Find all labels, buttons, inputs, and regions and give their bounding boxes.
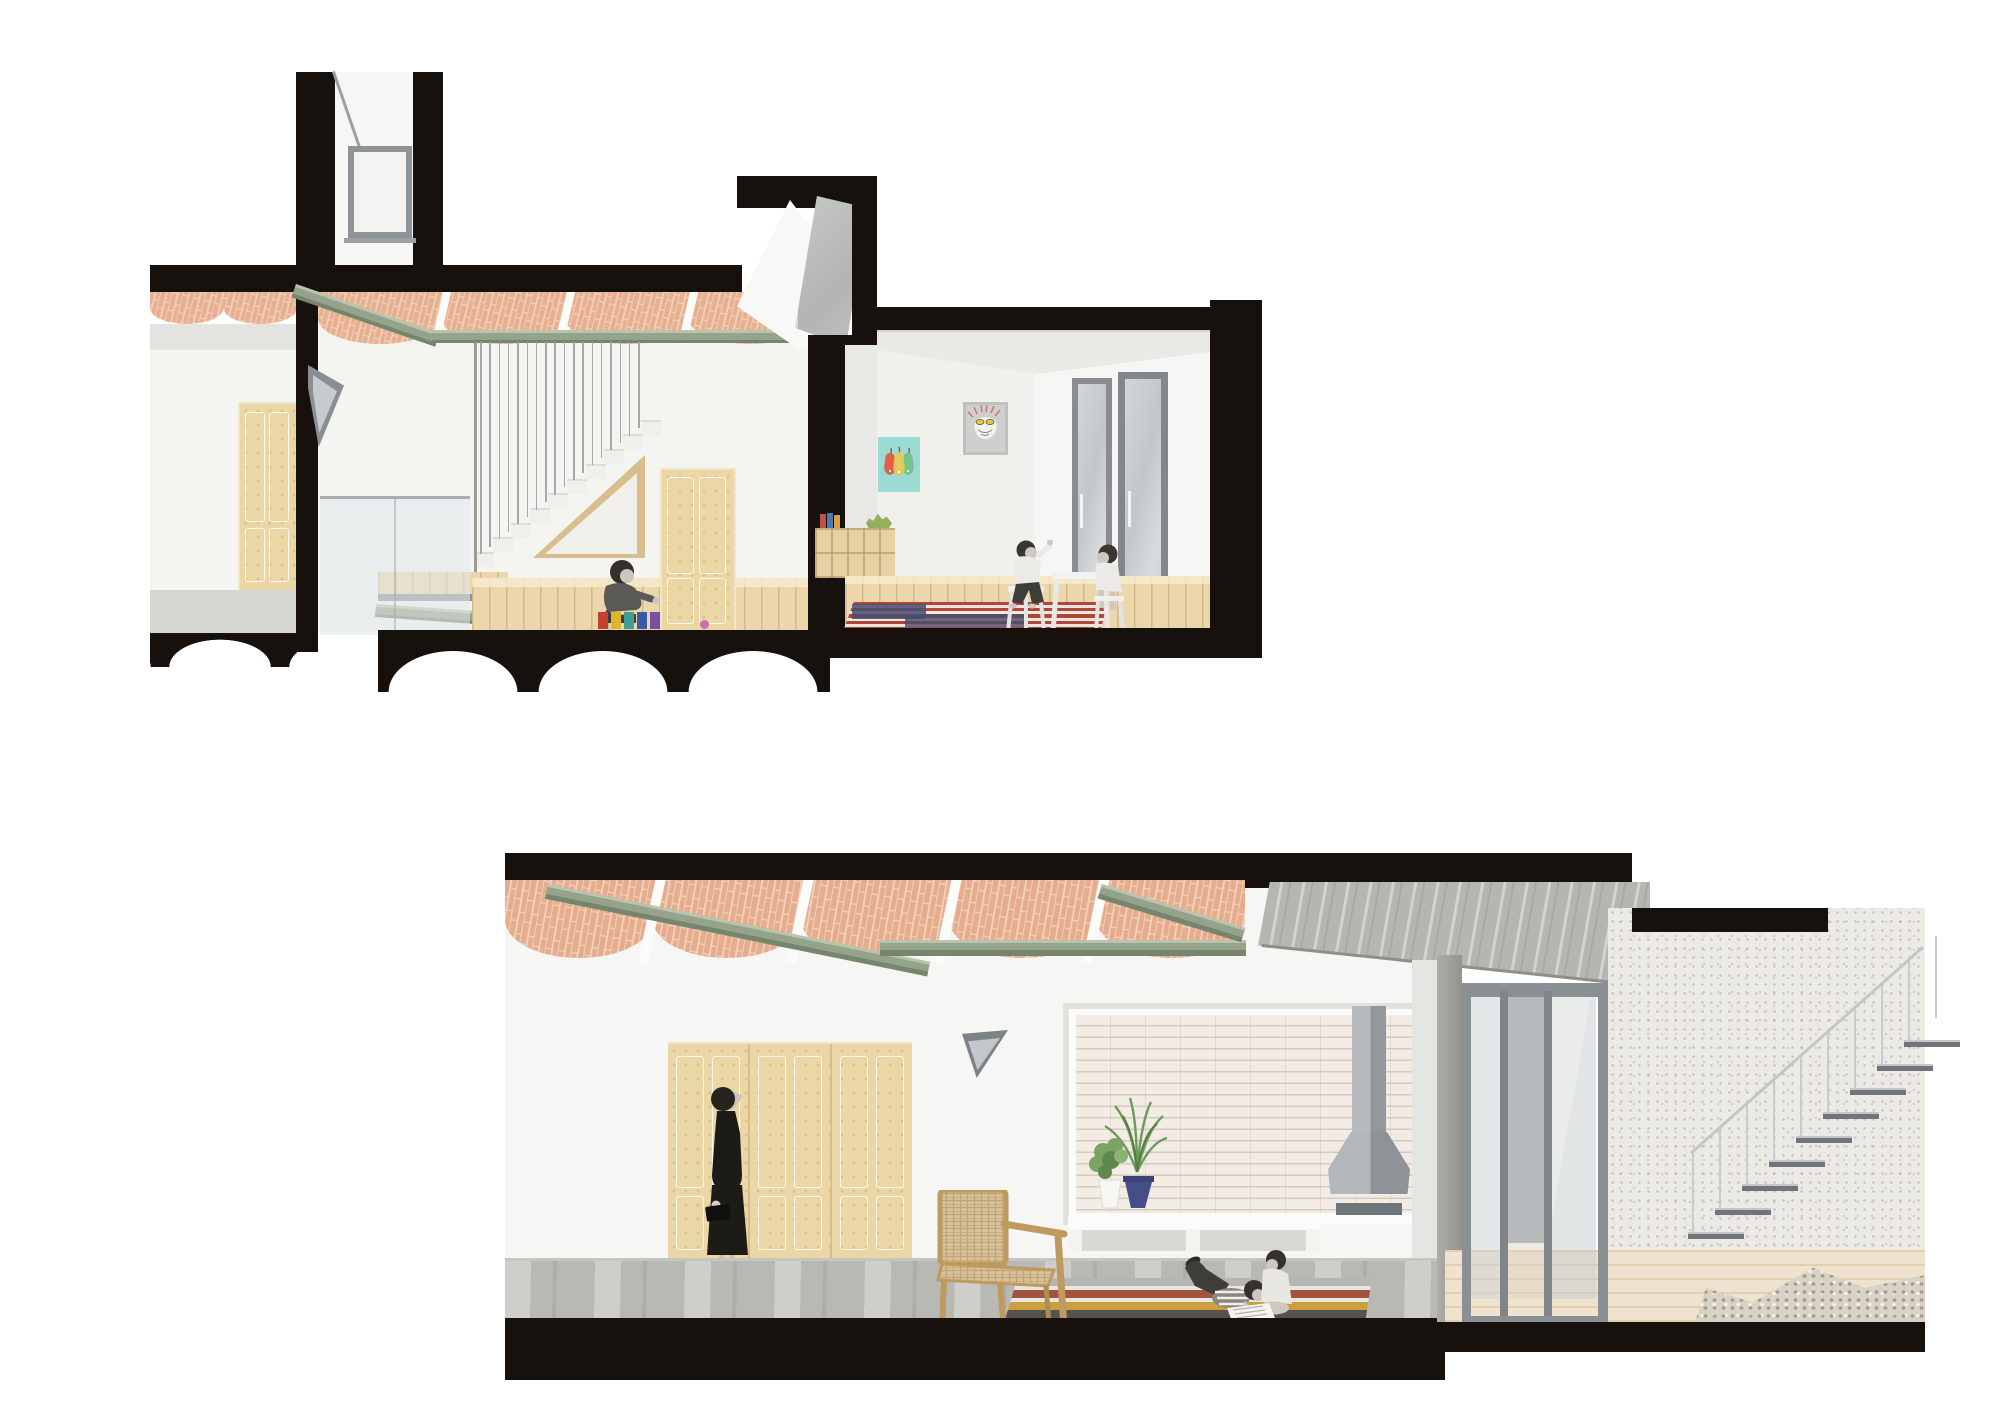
shelf-book [834,515,840,528]
lower-steel-beam-horizontal [880,940,1246,956]
tower-window-sill [344,238,416,243]
bench-leg [1306,1229,1320,1253]
wardrobe-panel [794,1196,822,1250]
dormer-right-cut [852,200,877,355]
hall-roof-cut [318,265,742,292]
architectural-sections-sheet [0,0,2000,1414]
left-wing-door [238,402,299,596]
glass-pane [1508,1243,1544,1299]
door-panel [667,578,694,624]
tower-window [348,146,412,238]
playroom-roof-cut [877,307,1210,333]
glass-pane-dark [1508,997,1544,1243]
playroom-right-wall-cut [1210,300,1262,658]
door-panel [269,412,289,522]
wicker-armchair [936,1190,1070,1334]
hall-footer-vaults [378,630,830,692]
wardrobe-panel [876,1196,904,1250]
wardrobe-panel [840,1056,868,1188]
sliding-glass-doors [1462,983,1608,1332]
wardrobe-divider [830,1044,832,1260]
lower-plinth-cut [505,1318,1445,1380]
glass-door-mullion [1462,983,1471,1332]
shelf-book [827,513,833,528]
courtyard-wall-top-cut [1632,908,1828,932]
door-handle [1080,494,1083,528]
fireplace-hearth-slot [1336,1203,1402,1215]
glass-balustrade-joint [394,499,396,635]
doodle-poster [963,402,1008,455]
door-panel [269,528,289,582]
children-at-table-figures [990,540,1135,635]
door-panel [699,578,726,624]
wardrobe-panel [794,1056,822,1188]
corner-wall-inner-strip [1412,960,1437,1258]
toy-ball [700,620,709,629]
tower-right-wall-cut [413,72,443,292]
shelf-book [820,514,826,528]
glass-door-mullion [1500,991,1508,1325]
left-wing-base-strip [150,590,297,633]
glass-door-top-rail [1462,983,1608,997]
wardrobe-panel [840,1196,868,1250]
glass-pane [1552,997,1596,1299]
potted-plants [1075,1068,1175,1216]
playroom-footer-cut [830,628,1262,658]
left-wing-wall-strip [150,324,297,352]
hall-left-wall-cut [296,292,318,652]
glass-balustrade [320,496,470,635]
right-plinth-cut [1445,1322,1925,1352]
left-wing-vault-ceiling [150,292,297,328]
door-panel [245,412,265,522]
pears-poster [878,437,920,492]
wardrobe-panel [876,1056,904,1188]
tower-left-wall-cut [296,72,335,292]
glass-door-mullion [1598,983,1608,1332]
fireplace-hood-stack [1352,1006,1386,1134]
glass-door-mullion [1544,991,1552,1325]
playroom-left-wall-cut [808,345,845,650]
door-handle [1128,491,1131,527]
bench-leg [1068,1229,1082,1253]
cubby-bookshelf [815,528,895,578]
door-panel [667,477,694,574]
hall-double-door [660,468,736,634]
left-wing-roof-cut [150,265,297,292]
left-wing-footer-vaults [150,633,297,667]
glass-pane [1470,997,1500,1299]
door-panel [699,477,726,574]
door-panel [245,528,265,582]
